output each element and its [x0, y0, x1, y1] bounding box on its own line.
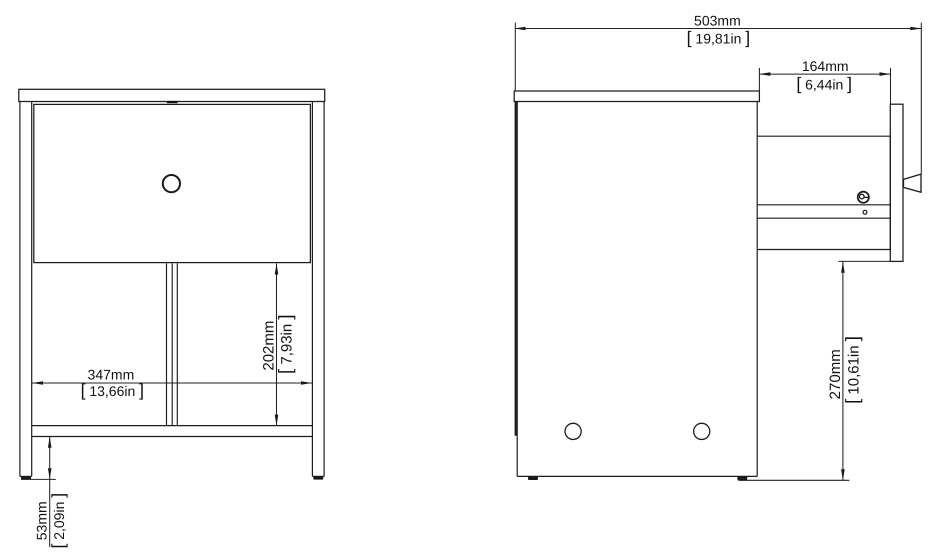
svg-text:[ 13,66in ]: [ 13,66in ]	[81, 380, 144, 400]
svg-text:202mm: 202mm	[260, 321, 277, 371]
svg-text:347mm: 347mm	[88, 367, 135, 383]
svg-text:503mm: 503mm	[694, 12, 741, 28]
svg-text:[ 10,61in ]: [ 10,61in ]	[842, 336, 863, 404]
svg-text:[ 7,93in ]: [ 7,93in ]	[275, 314, 296, 374]
svg-text:[ 19,81in ]: [ 19,81in ]	[687, 28, 750, 48]
svg-text:[ 2,09in ]: [ 2,09in ]	[48, 493, 68, 549]
svg-text:[ 6,44in ]: [ 6,44in ]	[796, 73, 852, 93]
svg-text:164mm: 164mm	[802, 58, 849, 74]
svg-text:53mm: 53mm	[34, 501, 50, 540]
svg-text:270mm: 270mm	[827, 349, 844, 399]
